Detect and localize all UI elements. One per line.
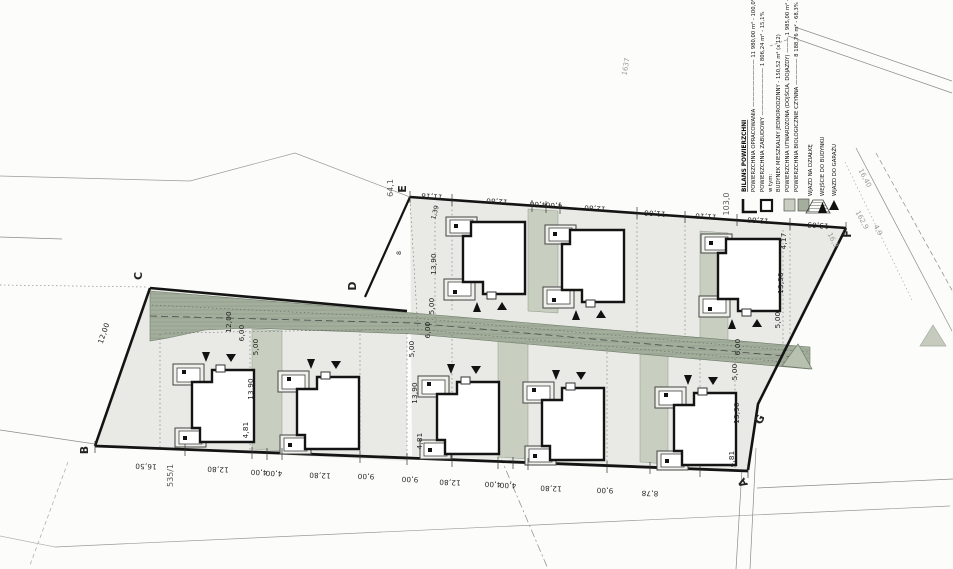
dim-label: 9,00 <box>357 472 374 482</box>
dim-label: 9,00 <box>596 486 613 496</box>
corner-label-c: C <box>132 272 145 280</box>
corner-label-a: A <box>735 475 751 489</box>
dim-label: 12,00 <box>96 321 112 345</box>
legend-symbols <box>743 199 839 213</box>
legend-title: BILANS POWIERZCHNI <box>742 120 748 192</box>
legend-line-opracowania: POWIERZCHNIA OPRACOWANIA ————————— 11 98… <box>750 0 757 192</box>
legend-line-biologiczna: POWIERZCHNIA BIOLOGICZNIE CZYNNA ————— 8… <box>793 2 800 192</box>
bottom-dimension-chain: 16,50 12,80 4,00 4,00 12,80 9,00 9,00 12… <box>135 462 659 499</box>
dim-label: 11,18 <box>421 191 443 201</box>
legend-line-w-tym: w tym: <box>768 174 774 192</box>
dim-label: 12,00 <box>224 311 233 333</box>
legend-line-zabudowy: POWIERZCHNIA ZABUDOWY ————————— 1 806,24… <box>759 11 766 192</box>
dim-label: 13,03 <box>807 220 829 230</box>
dim-label: 12,80 <box>747 215 769 225</box>
boundary-line-symbol <box>743 199 757 212</box>
legend-line-budynek: BUDYNEK MIESZKALNY JEDNORODZINNY - 150,5… <box>775 34 782 192</box>
dim-label: 6,00 <box>423 321 432 338</box>
corner-label-e: E <box>396 185 409 193</box>
parcel-number: 1637 <box>621 57 632 76</box>
garage-entrance-legend-symbol <box>829 200 839 210</box>
legend: BILANS POWIERZCHNI POWIERZCHNIA OPRACOWA… <box>742 0 839 213</box>
parcel-number: 162,9 <box>854 209 870 230</box>
dim-label: 4,81 <box>241 422 250 439</box>
corner-label-f: F <box>841 230 854 238</box>
paved-area-symbol <box>784 199 795 211</box>
dim-label: 4,00 <box>545 200 563 210</box>
dim-label: 13,90 <box>410 382 419 404</box>
dim-label: 5,00 <box>427 297 436 314</box>
dim-label: 11,06 <box>644 208 666 218</box>
dim-label: 5,00 <box>730 363 739 380</box>
parcel-number: 4,9 <box>872 223 884 237</box>
site-plan-drawing: 11,18 12,80 4,00 4,00 12,80 11,06 11,10 … <box>0 0 953 569</box>
legend-label-wjazd-dzialka: WJAZD NA DZIAŁKĘ <box>808 144 814 196</box>
dim-label: 4,81 <box>727 451 736 468</box>
dim-label: 13,90 <box>429 253 438 275</box>
parcel-number: 64,1 <box>386 179 395 197</box>
dim-label: 12,80 <box>439 478 461 488</box>
dim-label: 4,00 <box>250 468 267 478</box>
dim-label: 12,80 <box>486 196 508 206</box>
dim-label: 12,80 <box>584 203 606 213</box>
dim-label: 8,78 <box>641 489 658 499</box>
building-footprint-symbol <box>761 200 772 211</box>
dim-label: 12,80 <box>207 465 229 475</box>
dim-label: 8 <box>395 251 403 255</box>
dim-label: 4,00 <box>529 199 547 209</box>
corner-label-d: D <box>346 281 359 290</box>
dim-label: 5,00 <box>407 340 416 357</box>
dim-label: 13,90 <box>732 402 741 424</box>
dim-label: 12,80 <box>540 484 562 494</box>
parcel-number: 103,0 <box>722 193 731 216</box>
bio-active-area-symbol <box>798 199 809 211</box>
legend-label-wjazd-garaz: WJAZD DO GARAŻU <box>831 144 838 196</box>
dim-label: 6,00 <box>237 324 246 341</box>
dim-label: 4,00 <box>484 480 501 490</box>
dim-label: 11,10 <box>695 211 717 221</box>
dim-label: 9,00 <box>401 475 418 485</box>
corner-label-b: B <box>78 446 91 454</box>
site-plan-sheet: 11,18 12,80 4,00 4,00 12,80 11,06 11,10 … <box>0 0 953 569</box>
legend-label-wejscie: WEJŚCIE DO BUDYNKU <box>819 136 826 196</box>
dim-label: 6,00 <box>733 338 742 355</box>
dim-label: 13,90 <box>776 272 785 294</box>
dim-label: 4,17 <box>779 233 788 250</box>
plot-entrance-legend-symbol <box>806 200 830 213</box>
parcel-number: 16,40 <box>857 167 873 188</box>
dim-label: 4,00 <box>499 481 516 491</box>
plot-entrance-symbol-2 <box>920 325 946 346</box>
dim-label: 4,00 <box>265 469 282 479</box>
parcel-number: 535/1 <box>166 464 175 487</box>
dim-label: 13,90 <box>246 378 255 400</box>
dim-label: 12,80 <box>309 471 331 481</box>
dim-label: 4,81 <box>415 433 424 450</box>
dim-label: 16,50 <box>135 462 157 472</box>
dim-label: 5,00 <box>251 338 260 355</box>
legend-line-utwardzona: POWIERZCHNIA UTWARDZONA (DOJŚCIA, DOJAZD… <box>784 0 791 192</box>
dim-label: 5,00 <box>773 311 782 328</box>
